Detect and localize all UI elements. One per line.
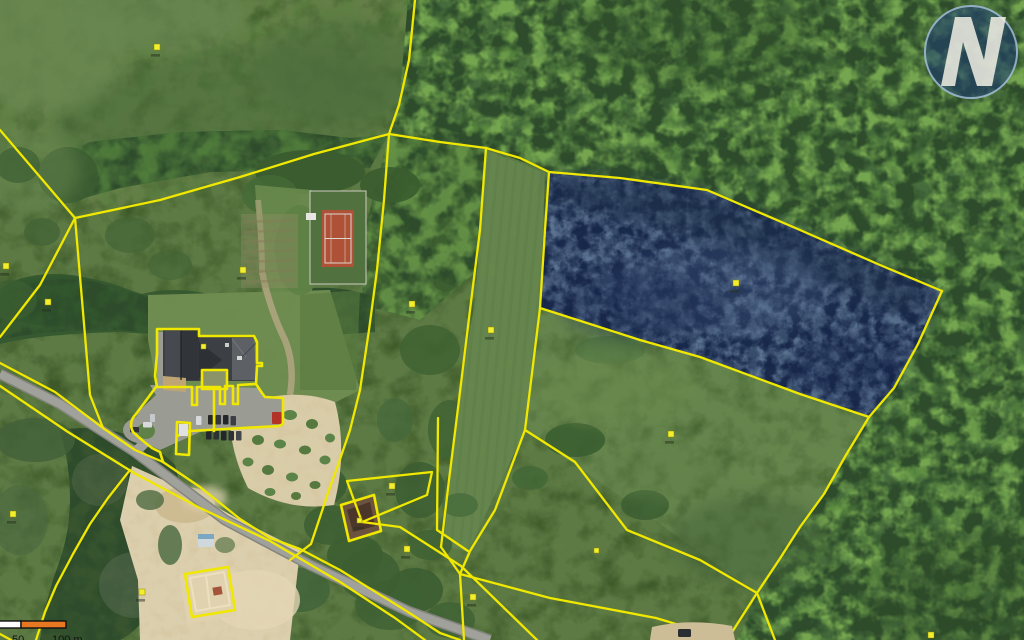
svg-text:50: 50 — [12, 634, 24, 640]
svg-text:100 m: 100 m — [52, 634, 83, 640]
